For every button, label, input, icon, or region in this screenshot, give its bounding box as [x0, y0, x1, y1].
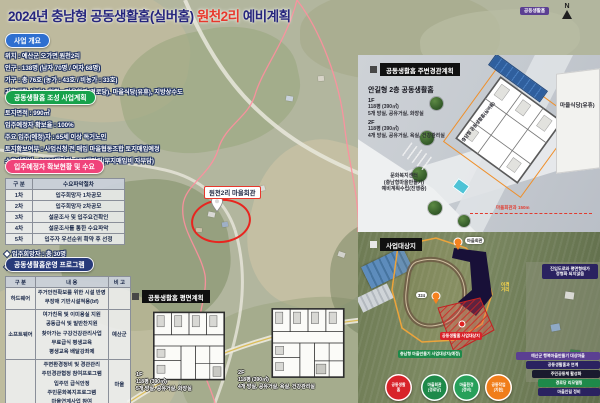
table-row: 5차입주자 우선순위 확약 후 선정	[6, 234, 125, 245]
plaza-label: 문화복지센터 (충남형마을만들기) 예비계획수립(진행중)	[366, 173, 442, 193]
corner-tag: 공동생활홈	[520, 7, 549, 15]
program-items: 주거안전확보를 위한 시설 반영 무장애 기반시설적용(bf)	[35, 288, 108, 310]
landscape-text-block: 안길형 2층 공동생활홈 1F 118평 (390㎡) 5개 방실, 공유거실,…	[368, 85, 445, 139]
demand-cell: 입주자 우선순위 확약 후 선정	[33, 234, 125, 245]
overview-line: 가구 : 총 76호 (농가 : 43호 / 비농가 : 33호)	[5, 75, 183, 84]
poster-canvas: 2024년 충남형 공동생활홈(실버홈) 원천2리 예비계획 공동생활홈 N 사…	[0, 0, 600, 403]
map-house	[286, 95, 294, 101]
demand-cell: 설문조사를 통한 수요파악	[33, 223, 125, 234]
program-item: 주거안전확보를 위한 시설 반영	[38, 289, 106, 298]
program-header: 구 분	[6, 277, 36, 288]
program-badge: 공동생활홈운영 프로그램	[5, 257, 94, 272]
site-area-pill-label: 공동생활홈 사업대상지	[442, 333, 480, 338]
table-row: 3차설문조사 및 입주요건확인	[6, 212, 125, 223]
plan-badge: 공동생활홈 조성 사업계획	[5, 90, 96, 105]
site-tag-label: 경로당 리모델링	[556, 380, 583, 385]
neighbor-building-label: 마을식당(유휴)	[560, 103, 595, 110]
program-header: 비 고	[108, 277, 130, 288]
program-item: 마을연계사업 참여	[38, 398, 106, 403]
tree-icon	[458, 215, 470, 227]
distance-line	[470, 213, 592, 214]
demand-cell: 2차	[6, 201, 33, 212]
tree-icon	[428, 201, 442, 215]
rooms-label: 5개 방실, 공유거실, 화장실	[368, 111, 445, 118]
landscape-heading: 안길형 2층 공동생활홈	[368, 85, 445, 95]
overview-line: 인구 : 138명 (남자 70명 / 여자 68명)	[5, 63, 183, 72]
title-highlight: 원천2리	[197, 9, 240, 24]
demand-header: 구 분	[6, 179, 33, 190]
demand-cell: 1차	[6, 190, 33, 201]
program-note: 예산군	[108, 309, 130, 359]
title-suffix: 예비계획	[240, 9, 291, 24]
table-row: 2차입주희망자 2차공모	[6, 201, 125, 212]
site-note-box: 진입도로와 평면형태가 정형화 되지않음	[542, 264, 598, 279]
program-group-label	[6, 359, 36, 403]
gap-distance-label: 이격 거리	[501, 282, 509, 293]
distance-label: 마을회관과 150m	[496, 205, 529, 211]
table-row: 하드웨어 주거안전확보를 위한 시설 반영 무장애 기반시설적용(bf)	[6, 288, 131, 310]
site-green-pill-label: 충남형 마을만들기 사업대상지(예정)	[400, 351, 460, 356]
program-note: 마을	[108, 359, 130, 403]
title-prefix: 2024년 충남형 공동생활홈(실버홈)	[8, 9, 197, 24]
site-section-title: 사업대상지	[380, 238, 422, 251]
floorplan-section-title: 공동생활홈 평면계획	[142, 290, 210, 303]
floorplan-2f-caption: 2F 118평 (390㎡) 4개 방실, 공유거실, 욕실, 건강관리실	[238, 370, 315, 391]
program-item: 공동급식 및 밑반찬지원	[38, 320, 106, 329]
site-tag-label: 마을안길 정비	[557, 389, 580, 394]
page-title: 2024년 충남형 공동생활홈(실버홈) 원천2리 예비계획	[8, 5, 291, 25]
program-item: 주민문화복지프로그램	[38, 389, 106, 398]
plan-line: 토지면적 : 990㎡	[5, 108, 160, 117]
program-header-row: 구 분 내 용 비 고	[6, 277, 131, 288]
area-label: 118평 (390㎡)	[368, 104, 445, 111]
plaza-line: 문화복지센터	[366, 173, 442, 180]
compass-arrow-icon	[562, 10, 572, 19]
plan-line: 입주예정자 확보율 : 100%	[5, 120, 160, 129]
legend-circle-home: 공동생활 홈	[385, 374, 412, 401]
demand-cell: 입주희망자 2차공모	[33, 201, 125, 212]
map-pin-label: 원천2리 마을회관	[204, 186, 261, 199]
program-item: 평생교육 배달강좌제	[38, 348, 106, 357]
site-tag: 공동생활홈과 연계	[526, 361, 600, 369]
pin-label-road: 324	[416, 292, 427, 298]
program-group-label: 하드웨어	[6, 288, 36, 310]
legend-circle-env: 마을환경 [정비]	[453, 374, 480, 401]
floorplan-section-label: 공동생활홈 평면계획	[132, 290, 210, 303]
floor-label: 1F	[136, 372, 192, 379]
site-tag-label: 주민공동체 활성화	[551, 371, 582, 376]
program-item: 주민경관협정 참여프로그램	[38, 370, 106, 379]
site-tag-label: 공동생활홈과 연계	[548, 362, 579, 367]
program-item: 찾아가는 구강건강관리사업	[38, 330, 106, 339]
landscape-section-label: 공동생활홈 주변경관계획	[370, 63, 460, 76]
legend-line: [지원]	[494, 388, 504, 393]
area-label: 118평 (390㎡)	[238, 377, 315, 384]
program-item: 무료급식 평생교육	[38, 339, 106, 348]
program-item: 주변환경정비 및 경관관리	[38, 361, 106, 370]
landscape-panel: 공동생활홈 주변경관계획 안길형 2층 공동생활홈 1F 118평 (390㎡)…	[358, 55, 600, 232]
demand-header: 수요파악절차	[33, 179, 125, 190]
legend-circle-work: 공동작업 [지원]	[485, 374, 512, 401]
table-row: 1차입주희망자 1차공모	[6, 190, 125, 201]
program-note	[108, 288, 130, 310]
site-green-pill: 충남형 마을만들기 사업대상지(예정)	[398, 350, 462, 358]
demand-table: 구 분 수요파악절차 1차입주희망자 1차공모 2차입주희망자 2차공모 3차설…	[5, 178, 125, 245]
rooms-label: 4개 방실, 공유거실, 욕실, 건강관리실	[238, 384, 315, 391]
floorplan-1f-caption: 1F 118평 (390㎡) 5개 방실, 공유거실, 화장실	[136, 372, 192, 393]
legend-line: [경로당]	[428, 388, 441, 393]
table-row: 주변환경정비 및 경관관리 주민경관협정 참여프로그램 입주민 급식안정 주민문…	[6, 359, 131, 403]
plaza-line: 예비계획수립(진행중)	[366, 186, 442, 193]
pin-label-village-hall: 마을회관	[465, 237, 484, 244]
overview-line: 위치 : 예산군 오가면 원천2리	[5, 51, 183, 60]
square-bullet-icon	[370, 241, 377, 248]
program-panel: 공동생활홈운영 프로그램 구 분 내 용 비 고 하드웨어 주거안전확보를 위한…	[5, 254, 131, 403]
demand-cell: 3차	[6, 212, 33, 223]
program-item: 무장애 기반시설적용(bf)	[38, 298, 106, 307]
plan-panel: 공동생활홈 조성 사업계획 토지면적 : 990㎡ 입주예정자 확보율 : 10…	[5, 87, 160, 165]
area-label: 118평 (390㎡)	[368, 126, 445, 133]
compass-n-label: N	[556, 3, 578, 10]
demand-cell: 설문조사 및 입주요건확인	[33, 212, 125, 223]
program-group-label: 소프트웨어	[6, 309, 36, 359]
overview-badge: 사업 개요	[5, 33, 50, 48]
rooms-label: 5개 방실, 공유거실, 화장실	[136, 386, 192, 393]
legend-line: 홈	[397, 388, 401, 393]
site-tag: 마을안길 정비	[538, 388, 600, 396]
site-area-pill: 공동생활홈 사업대상지	[440, 332, 482, 340]
corner-tag-label: 공동생활홈	[524, 8, 545, 13]
area-label: 118평 (390㎡)	[136, 379, 192, 386]
site-tag-label: 예산군 행복마을만들기 대상마을	[531, 353, 585, 358]
site-tag: 예산군 행복마을만들기 대상마을	[516, 352, 600, 360]
neighbor-building	[556, 68, 600, 173]
plan-line: 토지확보여부 : 사업신청 전 매입 마을협동조합 토지매입예정	[5, 144, 160, 153]
site-panel: 사업대상지 마을회관 324 공동생활홈 사업대상지 충남형 마을만들기 사업대…	[358, 232, 600, 403]
program-item: 여가친목 및 이미용실 지원	[38, 311, 106, 320]
site-tag: 주민공동체 활성화	[532, 370, 600, 378]
demand-header-row: 구 분 수요파악절차	[6, 179, 125, 190]
square-bullet-icon	[132, 293, 139, 300]
landscape-section-title: 공동생활홈 주변경관계획	[380, 63, 460, 76]
program-items: 여가친목 및 이미용실 지원 공동급식 및 밑반찬지원 찾아가는 구강건강관리사…	[35, 309, 108, 359]
gap-line: 거리	[501, 287, 509, 292]
program-header: 내 용	[35, 277, 108, 288]
program-item: 입주민 급식안정	[38, 380, 106, 389]
demand-cell: 5차	[6, 234, 33, 245]
compass: N	[556, 3, 578, 19]
demand-cell: 4차	[6, 223, 33, 234]
legend-circle-hall: 마을회관 [경로당]	[421, 374, 448, 401]
floor-label: 2F	[238, 370, 315, 377]
table-row: 소프트웨어 여가친목 및 이미용실 지원 공동급식 및 밑반찬지원 찾아가는 구…	[6, 309, 131, 359]
square-bullet-icon	[370, 66, 377, 73]
note-line: 정형화 되지않음	[544, 271, 596, 276]
demand-badge: 입주예정자 확보현황 및 수요	[5, 159, 104, 174]
site-section-label: 사업대상지	[370, 238, 422, 251]
table-row: 4차설문조사를 통한 수요파악	[6, 223, 125, 234]
legend-line: [정비]	[462, 388, 472, 393]
rooms-label: 4개 방실, 공유거실, 욕실, 건강관리실	[368, 133, 445, 140]
site-tag: 경로당 리모델링	[538, 379, 600, 387]
program-table: 구 분 내 용 비 고 하드웨어 주거안전확보를 위한 시설 반영 무장애 기반…	[5, 276, 131, 403]
map-house	[318, 76, 324, 82]
program-items: 주변환경정비 및 경관관리 주민경관협정 참여프로그램 입주민 급식안정 주민문…	[35, 359, 108, 403]
plan-line: 주요 입주(예정)자 : 65세 이상 독거노인	[5, 132, 160, 141]
demand-cell: 입주희망자 1차공모	[33, 190, 125, 201]
